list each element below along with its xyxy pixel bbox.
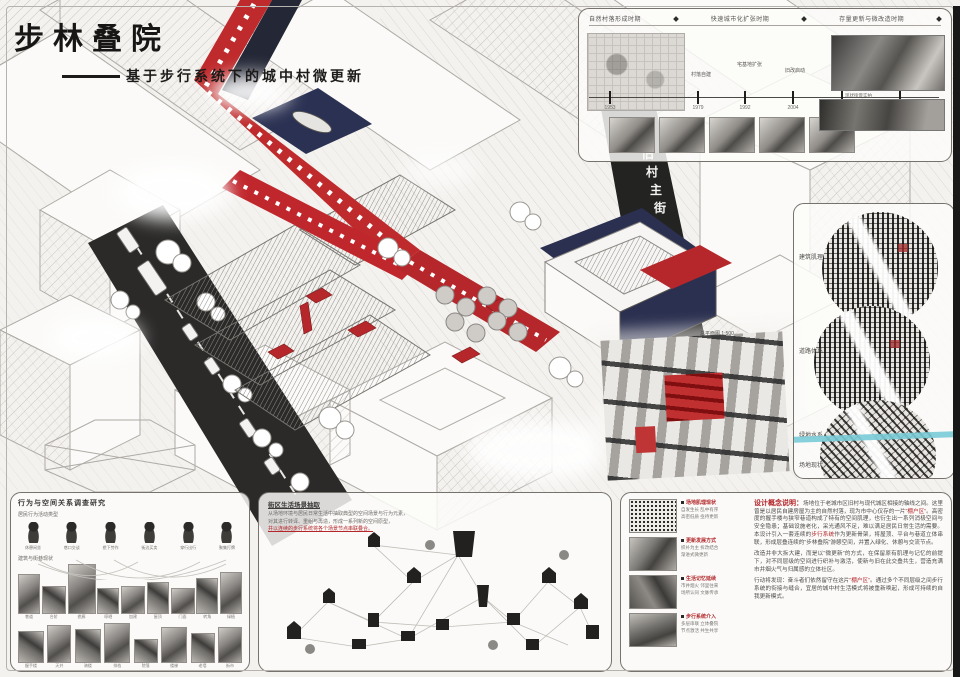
bullet-sub: 市井烟火 邻里往来 <box>681 582 718 589</box>
site-photo-thumbnail <box>629 537 677 571</box>
site-plan-highlight-2 <box>635 426 656 453</box>
elements-title: 街区生活场景抽取 <box>268 499 602 509</box>
concept-text-column: 设计概念说明：场地位于老城市区旧村与现代城区相接的轴线之间。这里曾是以居民自建房… <box>747 499 943 665</box>
photo-caption: 加建 <box>121 614 145 620</box>
timeline-event: 宅基地扩张 <box>737 61 762 68</box>
street-photo <box>75 629 101 663</box>
poster-subtitle: 基于步行系统下的城中村微更新 <box>126 66 364 86</box>
bullet-sub: 多层串联 立体叠院 <box>681 620 718 627</box>
street-photo <box>134 639 158 663</box>
street-photo <box>18 631 44 663</box>
timeline-photo <box>759 117 805 153</box>
concept-bullet-item: 生活记忆延续 市井烟火 邻里往来 场所认同 文脉传承 <box>629 575 747 609</box>
bullet-square-icon <box>681 577 684 580</box>
concept-bullet-column: 场地肌理现状 自发生长 乱中有序 高密低质 亟待更新 更新发展方式 织补为主 拆… <box>629 499 747 665</box>
photo-caption: 老墙 <box>191 663 215 669</box>
photo-caption: 街市 <box>218 663 242 669</box>
timeline-panel: 自然村落形成时期 快速城市化扩张时期 存量更新与微改造时期 1953 1979 … <box>578 8 952 162</box>
site-marker <box>890 340 900 348</box>
concept-paragraph-1: 设计概念说明：场地位于老城市区旧村与现代城区相接的轴线之间。这里曾是以居民自建房… <box>754 499 943 547</box>
photo-caption: 骑楼 <box>75 663 101 669</box>
title-block: 步林叠院 基于步行系统下的城中村微更新 <box>14 14 364 86</box>
diamond-marker-icon <box>801 16 807 22</box>
diamond-marker-icon <box>673 16 679 22</box>
figure-item: 聚集打牌 <box>212 520 242 551</box>
street-photo <box>196 578 218 614</box>
bullet-head: 场地肌理现状 <box>686 499 716 506</box>
figure-caption: 穿行出行 <box>180 545 196 551</box>
timeline-tick <box>792 91 794 104</box>
street-photo <box>42 586 66 614</box>
figure-photo <box>64 522 79 543</box>
timeline-photo <box>659 117 705 153</box>
figure-caption: 檐下劳作 <box>103 545 119 551</box>
figure-photo <box>142 522 157 543</box>
behavior-study-panel: 行为与空间关系调查研究 居民行为活动类型 休憩闲坐 巷口交谈 <box>10 492 250 672</box>
bullet-sub: 场所认同 文脉传承 <box>681 589 718 596</box>
map-label: 建筑肌理 <box>799 252 823 261</box>
figure-caption: 街边买卖 <box>141 545 157 551</box>
photo-caption: 排档 <box>104 663 130 669</box>
behavior-row1-label: 居民行为活动类型 <box>18 511 242 518</box>
figure-item: 休憩闲坐 <box>18 520 48 551</box>
timeline-event: 村落自建 <box>691 71 711 78</box>
photo-caption: 台阶 <box>42 614 66 620</box>
site-marker <box>898 244 908 252</box>
bullet-head: 生活记忆延续 <box>686 575 716 582</box>
figure-item: 巷口交谈 <box>57 520 87 551</box>
diamond-marker-icon <box>936 16 942 22</box>
scan-edge-strip <box>953 6 960 677</box>
timeline-photo <box>609 117 655 153</box>
figure-item: 檐下劳作 <box>96 520 126 551</box>
photo-caption: 转角 <box>196 614 218 620</box>
site-plan-highlight <box>664 373 724 422</box>
photo-caption: 屋顶 <box>147 614 169 620</box>
photo-caption: 楼梯 <box>161 663 187 669</box>
figure-ground-thumbnail <box>629 499 677 533</box>
bullet-square-icon <box>681 539 684 542</box>
elements-line2: 对其进行转译、重组与再造，形成一系列新的空间原型， <box>268 519 393 525</box>
timeline-era-2: 快速城市化扩张时期 <box>711 14 770 23</box>
bullet-sub: 高密低质 亟待更新 <box>681 513 718 520</box>
timeline-headers: 自然村落形成时期 快速城市化扩张时期 存量更新与微改造时期 <box>589 14 941 23</box>
street-photo <box>97 588 119 614</box>
photo-caption: 握手楼 <box>18 663 44 669</box>
concept-body: 行动将发现：奋斗者们依然留守在这片 <box>754 578 849 584</box>
street-photo <box>191 633 215 663</box>
photo-caption: 晾晒 <box>97 614 119 620</box>
timeline-event: 旧改启动 <box>785 67 805 74</box>
map-label: 道路体系 <box>799 346 823 355</box>
photo-caption: 院落 <box>134 663 158 669</box>
concept-red-term: 步行系统 <box>811 532 834 538</box>
concept-body: 改造并非大拆大建，而是以“微更新”的方式，在保留原有肌理与记忆的前提下，对不同层… <box>754 551 943 572</box>
bullet-sub: 自发生长 乱中有序 <box>681 506 718 513</box>
street-photo <box>161 627 187 663</box>
figure-caption: 聚集打牌 <box>219 545 235 551</box>
concept-bullet-item: 更新发展方式 织补为主 拆改结合 渐进式微更新 <box>629 537 747 571</box>
behavior-title: 行为与空间关系调查研究 <box>18 498 242 508</box>
bullet-head: 步行系统介入 <box>686 613 716 620</box>
site-plan-label: 总平面图 1:500 <box>700 330 734 337</box>
street-photo <box>218 627 242 663</box>
site-photo-thumbnail <box>629 575 677 609</box>
timeline-photo <box>709 117 755 153</box>
figure-photo <box>219 522 234 543</box>
concept-bullet-item: 场地肌理现状 自发生长 乱中有序 高密低质 亟待更新 <box>629 499 747 533</box>
figure-photo <box>26 522 41 543</box>
concept-lead: 设计概念说明： <box>754 500 803 507</box>
bullet-square-icon <box>681 615 684 618</box>
timeline-axis <box>589 97 939 98</box>
element-network-diagram <box>268 527 602 665</box>
historic-map-image <box>587 33 685 111</box>
timeline-year: 2004 <box>787 105 798 111</box>
map-analysis-panel: 建筑肌理 道路体系 绿地水系 场地现状 <box>793 203 955 479</box>
photo-caption: 绿植 <box>220 614 242 620</box>
bullet-sub: 渐进式微更新 <box>681 551 718 558</box>
timeline-tick <box>697 91 699 104</box>
street-photo <box>171 588 195 614</box>
street-photo <box>18 574 40 614</box>
timeline-year: 1953 <box>604 105 615 111</box>
bullet-sub: 织补为主 拆改结合 <box>681 544 718 551</box>
figure-photo <box>181 522 196 543</box>
site-photo-strip <box>819 99 945 131</box>
concept-paragraph-3: 行动将发现：奋斗者们依然留守在这片“棚户区”。通过多个不同层级之间步行系统的衔接… <box>754 578 943 601</box>
timeline-era-1: 自然村落形成时期 <box>589 14 641 23</box>
poster-title: 步林叠院 <box>14 14 364 58</box>
scene-elements-panel: 街区生活场景抽取 从场地环境与居民日常生活中抽取典型的空间场景与行为元素， 对其… <box>258 492 612 672</box>
photo-caption: 檐廊 <box>68 614 96 620</box>
poster-board: 旧村 主街 <box>0 0 960 677</box>
timeline-year: 1992 <box>739 105 750 111</box>
timeline-header-line <box>589 25 941 26</box>
design-concept-panel: 场地肌理现状 自发生长 乱中有序 高密低质 亟待更新 更新发展方式 织补为主 拆… <box>620 492 952 672</box>
bullet-square-icon <box>681 501 684 504</box>
figure-photo <box>103 522 118 543</box>
figure-caption: 休憩闲坐 <box>25 545 41 551</box>
title-dash <box>62 75 120 78</box>
figure-caption: 巷口交谈 <box>64 545 80 551</box>
site-photo-collage <box>831 35 945 91</box>
photo-caption: 巷道 <box>18 614 40 620</box>
photo-caption: 天井 <box>47 663 71 669</box>
street-photo <box>104 623 130 663</box>
figure-item: 街边买卖 <box>134 520 164 551</box>
timeline-era-3: 存量更新与微改造时期 <box>839 14 904 23</box>
street-photo <box>121 586 145 614</box>
concept-bullet-item: 步行系统介入 多层串联 立体叠院 节点激活 共生共享 <box>629 613 747 647</box>
bullet-sub: 节点激活 共生共享 <box>681 627 718 634</box>
timeline-year: 1979 <box>692 105 703 111</box>
bullet-head: 更新发展方式 <box>686 537 716 544</box>
site-photo-thumbnail <box>629 613 677 647</box>
concept-paragraph-2: 改造并非大拆大建，而是以“微更新”的方式，在保留原有肌理与记忆的前提下，对不同层… <box>754 551 943 574</box>
street-photo <box>147 582 169 614</box>
figure-item: 穿行出行 <box>173 520 203 551</box>
site-plan-inset <box>600 331 789 480</box>
photo-caption: 门面 <box>171 614 195 620</box>
concept-red-term: “棚户区” <box>849 578 870 584</box>
elements-line1: 从场地环境与居民日常生活中抽取典型的空间场景与行为元素， <box>268 511 408 517</box>
street-photo <box>47 625 71 663</box>
concept-red-term: “棚户区” <box>906 509 927 515</box>
timeline-tick <box>744 91 746 104</box>
map-label: 场地现状 <box>799 460 823 469</box>
timeline-tick <box>609 91 611 104</box>
